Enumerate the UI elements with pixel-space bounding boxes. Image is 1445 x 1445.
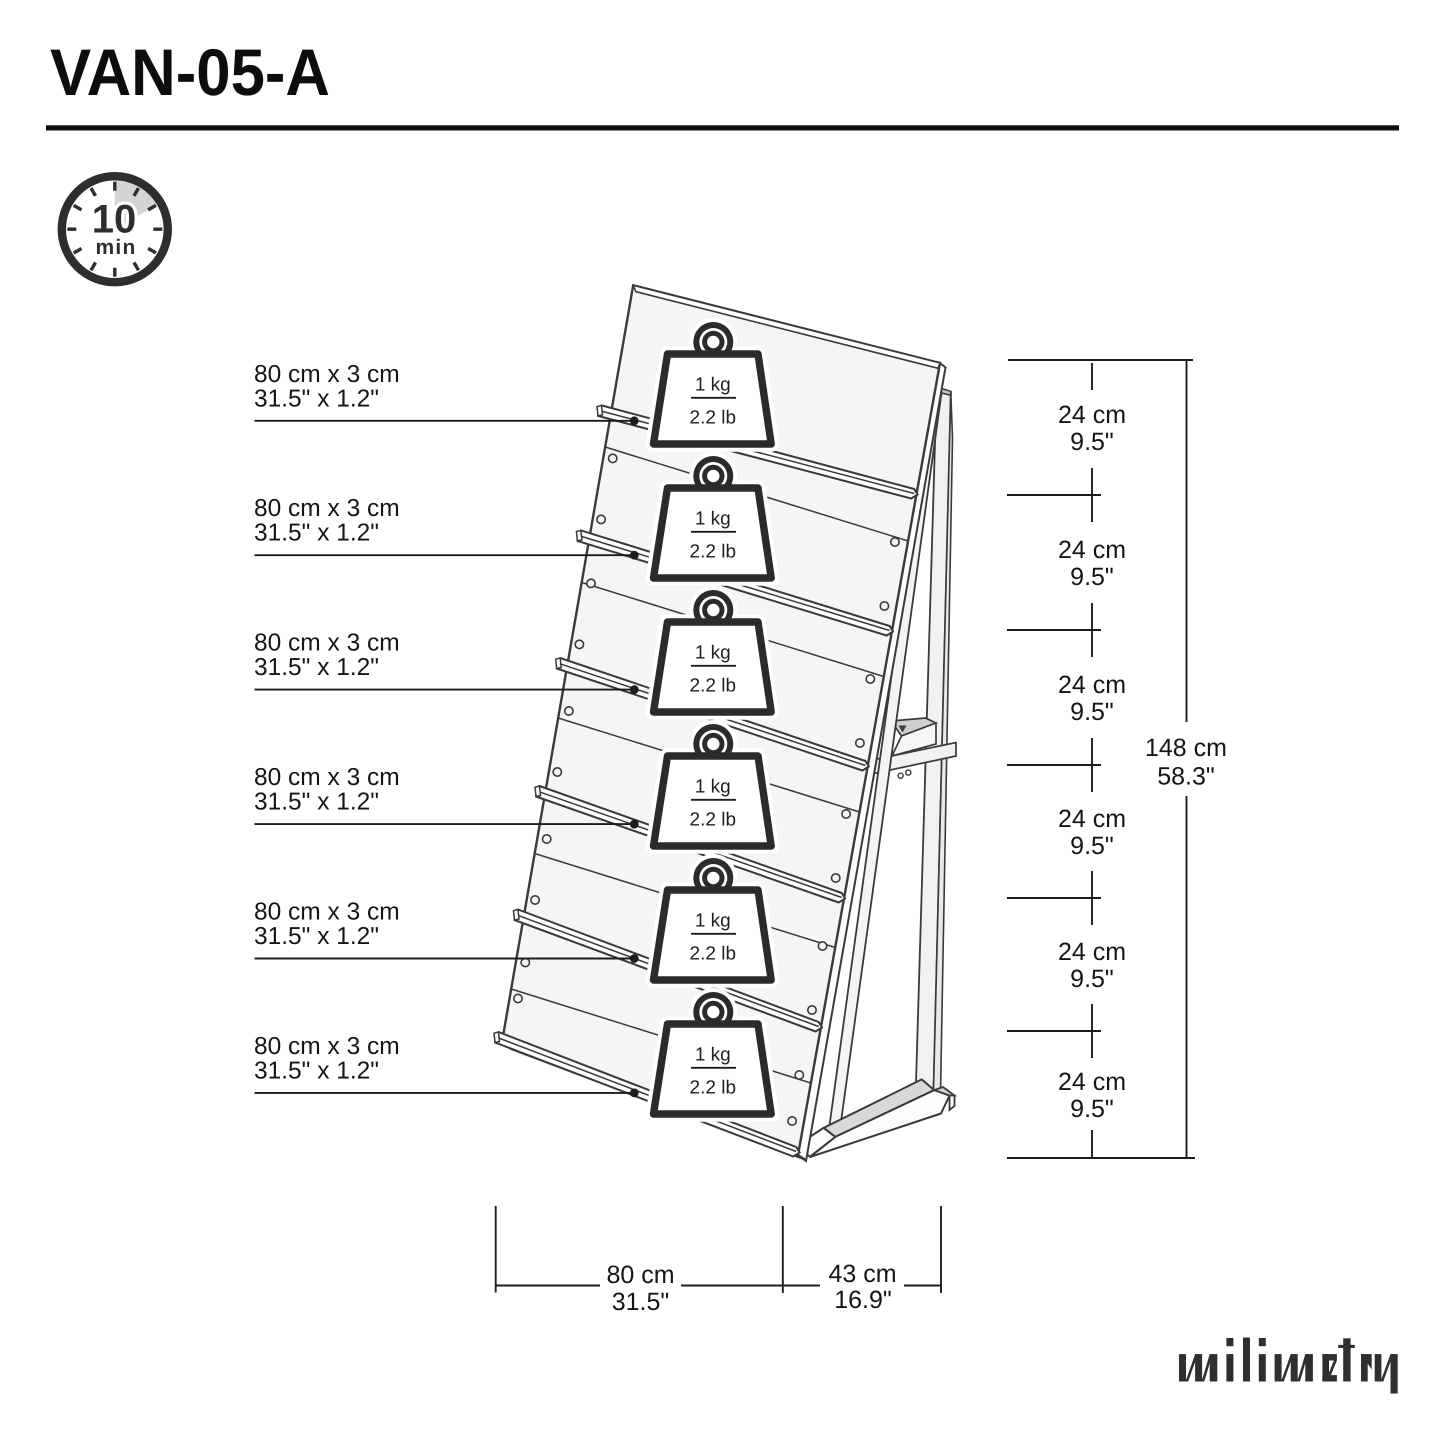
svg-text:9.5": 9.5" — [1070, 832, 1114, 860]
svg-text:31.5" x 1.2": 31.5" x 1.2" — [254, 789, 379, 816]
svg-text:31.5": 31.5" — [612, 1288, 670, 1316]
svg-text:24 cm: 24 cm — [1058, 401, 1126, 429]
svg-text:148 cm: 148 cm — [1145, 734, 1227, 762]
svg-text:80 cm x 3 cm: 80 cm x 3 cm — [254, 1033, 400, 1060]
svg-text:min: min — [96, 236, 137, 259]
svg-text:24 cm: 24 cm — [1058, 1068, 1126, 1096]
svg-text:24 cm: 24 cm — [1058, 805, 1126, 833]
svg-text:58.3": 58.3" — [1157, 763, 1215, 791]
svg-text:2.2 lb: 2.2 lb — [690, 944, 736, 965]
svg-text:1 kg: 1 kg — [695, 1045, 731, 1066]
svg-text:31.5" x 1.2": 31.5" x 1.2" — [254, 385, 379, 412]
svg-text:1 kg: 1 kg — [695, 643, 731, 664]
svg-text:31.5" x 1.2": 31.5" x 1.2" — [254, 520, 379, 547]
svg-text:1 kg: 1 kg — [695, 777, 731, 798]
svg-text:9.5": 9.5" — [1070, 698, 1114, 726]
svg-text:2.2 lb: 2.2 lb — [690, 542, 736, 563]
svg-text:9.5": 9.5" — [1070, 428, 1114, 456]
svg-text:80 cm x 3 cm: 80 cm x 3 cm — [254, 361, 400, 388]
svg-text:9.5": 9.5" — [1070, 563, 1114, 591]
svg-text:1 kg: 1 kg — [695, 375, 731, 396]
svg-text:80 cm x 3 cm: 80 cm x 3 cm — [254, 630, 400, 657]
svg-text:2.2 lb: 2.2 lb — [690, 810, 736, 831]
svg-text:43 cm: 43 cm — [828, 1260, 896, 1288]
svg-text:2.2 lb: 2.2 lb — [690, 676, 736, 697]
svg-text:31.5" x 1.2": 31.5" x 1.2" — [254, 923, 379, 950]
svg-text:24 cm: 24 cm — [1058, 938, 1126, 966]
svg-text:1 kg: 1 kg — [695, 509, 731, 530]
svg-text:80 cm: 80 cm — [606, 1261, 674, 1289]
svg-text:80 cm x 3 cm: 80 cm x 3 cm — [254, 764, 400, 791]
svg-text:9.5": 9.5" — [1070, 1095, 1114, 1123]
svg-text:80 cm x 3 cm: 80 cm x 3 cm — [254, 899, 400, 926]
svg-text:2.2 lb: 2.2 lb — [690, 408, 736, 429]
svg-text:10: 10 — [92, 198, 137, 242]
svg-text:9.5": 9.5" — [1070, 965, 1114, 993]
svg-text:31.5" x 1.2": 31.5" x 1.2" — [254, 1057, 379, 1084]
svg-text:24 cm: 24 cm — [1058, 536, 1126, 564]
svg-text:1 kg: 1 kg — [695, 911, 731, 932]
svg-text:VAN-05-A: VAN-05-A — [50, 35, 330, 109]
svg-text:2.2 lb: 2.2 lb — [690, 1078, 736, 1099]
svg-text:31.5" x 1.2": 31.5" x 1.2" — [254, 654, 379, 681]
svg-text:16.9": 16.9" — [834, 1286, 892, 1314]
svg-text:24 cm: 24 cm — [1058, 671, 1126, 699]
svg-text:80 cm x 3 cm: 80 cm x 3 cm — [254, 495, 400, 522]
